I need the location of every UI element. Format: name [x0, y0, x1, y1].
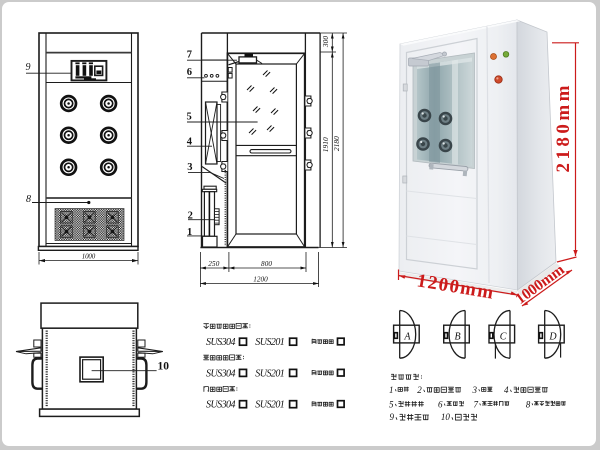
svg-text:2: 2 [417, 385, 422, 395]
svg-text:9: 9 [390, 412, 395, 422]
svg-text:6: 6 [187, 67, 192, 78]
svg-text:SUS304: SUS304 [206, 400, 236, 411]
svg-text:1000: 1000 [82, 252, 96, 260]
svg-text:10: 10 [441, 412, 451, 422]
svg-text:4: 4 [504, 385, 509, 395]
svg-text:1200: 1200 [253, 275, 268, 283]
svg-text:2180mm: 2180mm [553, 85, 574, 172]
svg-text:8: 8 [26, 194, 31, 205]
svg-text:3: 3 [472, 385, 478, 395]
svg-text:5: 5 [389, 399, 394, 409]
svg-text:10: 10 [158, 361, 170, 373]
svg-text:SUS201: SUS201 [255, 337, 284, 348]
svg-text:9: 9 [26, 62, 31, 73]
svg-text:250: 250 [208, 260, 219, 268]
svg-text:300: 300 [321, 36, 330, 49]
svg-text:1910: 1910 [321, 137, 330, 152]
svg-text:8: 8 [526, 399, 531, 409]
svg-text:2180: 2180 [332, 136, 341, 151]
svg-text:7: 7 [474, 399, 479, 409]
svg-text:SUS201: SUS201 [255, 400, 284, 411]
svg-text:C: C [500, 332, 507, 343]
svg-text:4: 4 [187, 136, 193, 147]
svg-text:A: A [403, 332, 411, 343]
svg-text:7: 7 [187, 50, 192, 61]
svg-text:SUS304: SUS304 [206, 368, 236, 379]
svg-text:800: 800 [261, 260, 272, 268]
svg-text:SUS201: SUS201 [255, 368, 284, 379]
svg-text:5: 5 [187, 112, 192, 123]
svg-text:3: 3 [187, 162, 192, 173]
svg-text:SUS304: SUS304 [206, 337, 236, 348]
svg-text:6: 6 [438, 399, 443, 409]
svg-text:1: 1 [389, 385, 394, 395]
svg-text:D: D [548, 332, 557, 343]
svg-text:B: B [454, 332, 460, 343]
